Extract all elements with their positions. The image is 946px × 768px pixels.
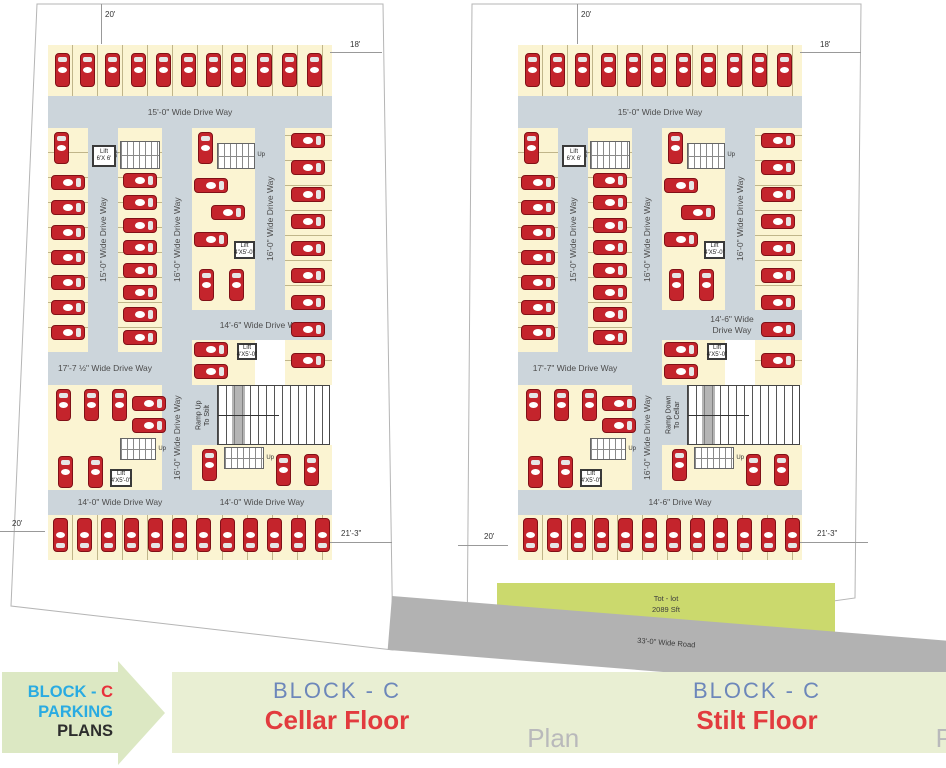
car	[593, 173, 627, 188]
car	[681, 205, 715, 220]
ramp-label: Ramp Down To Cellar	[662, 385, 686, 445]
staircase: Up	[590, 141, 630, 169]
banner-plan-word: Plan	[818, 723, 946, 768]
banner-floor-title: Cellar Floor Plan	[172, 705, 502, 736]
car	[243, 518, 258, 552]
car	[291, 187, 325, 202]
car	[123, 240, 157, 255]
stairs-up-label: Up	[158, 446, 166, 452]
car	[123, 263, 157, 278]
car	[198, 132, 213, 164]
car	[761, 241, 795, 256]
dimension-line	[458, 545, 508, 546]
dimension-line	[330, 52, 382, 53]
banner-arrow-head-icon	[118, 661, 165, 765]
car	[582, 389, 597, 421]
dimension-line	[800, 542, 868, 543]
parking-plans-page: 15'-0" Wide Drive Way15'-0" Wide Drive W…	[0, 0, 946, 768]
car	[746, 454, 761, 486]
driveway-label-drive-mid-left: 17'-7" Wide Drive Way	[518, 352, 632, 385]
car	[206, 53, 221, 87]
car	[132, 396, 166, 411]
car	[112, 389, 127, 421]
driveway-label-drive-top: 15'-0" Wide Drive Way	[518, 96, 802, 128]
lift: Lift 4'X5'-0"	[110, 469, 132, 487]
banner-floor-name: Stilt Floor	[696, 705, 817, 735]
car	[315, 518, 330, 552]
staircase: Up	[224, 447, 264, 469]
car	[291, 241, 325, 256]
stairs-up-label: Up	[257, 152, 265, 158]
car	[752, 53, 767, 87]
car	[55, 53, 70, 87]
car	[642, 518, 657, 552]
car	[575, 53, 590, 87]
car	[54, 132, 69, 164]
banner-block-title: BLOCK - C	[172, 678, 502, 704]
car	[761, 295, 795, 310]
driveway-label-drive-mid-left: 17'-7 ½" Wide Drive Way	[48, 352, 162, 385]
car	[526, 389, 541, 421]
car	[231, 53, 246, 87]
car	[105, 53, 120, 87]
car	[124, 518, 139, 552]
car	[761, 353, 795, 368]
banner-title-cellar: BLOCK - C Cellar Floor Plan	[172, 678, 502, 736]
banner-floor-name: Cellar Floor	[265, 705, 409, 735]
car	[51, 325, 85, 340]
lift: Lift 4'X5'-0"	[237, 343, 257, 360]
car	[737, 518, 752, 552]
car	[602, 418, 636, 433]
car	[664, 342, 698, 357]
car	[291, 214, 325, 229]
car	[123, 285, 157, 300]
banner-arrow-block-c: C	[101, 683, 113, 701]
floor-plan-cellar: 15'-0" Wide Drive Way15'-0" Wide Drive W…	[48, 45, 336, 560]
dimension-label-bottom-right: 21'-3"	[341, 529, 361, 538]
staircase: Up	[120, 438, 156, 460]
lift: Lift 6'X 6'	[92, 145, 116, 167]
banner-band: BLOCK - C Cellar Floor Plan BLOCK - C St…	[172, 672, 946, 753]
car	[291, 133, 325, 148]
car	[51, 250, 85, 265]
car	[148, 518, 163, 552]
car	[690, 518, 705, 552]
staircase: Up	[590, 438, 626, 460]
floor-plan-stilt: 15'-0" Wide Drive Way15'-0" Wide Drive W…	[518, 45, 806, 560]
car	[132, 418, 166, 433]
car	[593, 285, 627, 300]
car	[194, 178, 228, 193]
lift: Lift 4'X5'-0"	[704, 241, 725, 259]
car	[618, 518, 633, 552]
dimension-label-top-right: 18'	[350, 40, 360, 49]
car	[199, 269, 214, 301]
car	[713, 518, 728, 552]
car	[276, 454, 291, 486]
lift: Lift 4'X5'-0"	[234, 241, 255, 259]
ramp-label: Ramp Up To Stilt	[192, 385, 216, 445]
ramp	[687, 385, 800, 445]
car	[761, 268, 795, 283]
car	[123, 173, 157, 188]
driveway-label-drive-bottom-right: 14'-0" Wide Drive Way	[192, 490, 332, 515]
dimension-label-top: 20'	[581, 10, 591, 19]
car	[668, 132, 683, 164]
car	[593, 240, 627, 255]
road-label: 33'-0" Wide Road	[637, 636, 696, 650]
banner-title-stilt: BLOCK - C Stilt Floor Plan	[592, 678, 922, 736]
car	[524, 132, 539, 164]
car	[123, 330, 157, 345]
driveway-label-drive-bottom-left: 14'-0" Wide Drive Way	[48, 490, 192, 515]
car	[291, 322, 325, 337]
car	[291, 160, 325, 175]
car	[521, 200, 555, 215]
car	[58, 456, 73, 488]
banner-arrow-block-text: BLOCK -	[28, 683, 97, 701]
car	[761, 518, 776, 552]
ramp	[217, 385, 330, 445]
driveway-label-drive-top: 15'-0" Wide Drive Way	[48, 96, 332, 128]
car	[196, 518, 211, 552]
car	[554, 389, 569, 421]
car	[761, 133, 795, 148]
car	[194, 232, 228, 247]
car	[602, 396, 636, 411]
car	[593, 307, 627, 322]
dimension-line	[0, 531, 45, 532]
car	[593, 218, 627, 233]
car	[525, 53, 540, 87]
car	[626, 53, 641, 87]
car	[785, 518, 800, 552]
driveway-label-drive-v2b: 16'-0" Wide Drive Way	[632, 385, 662, 490]
car	[699, 269, 714, 301]
banner-block-title: BLOCK - C	[592, 678, 922, 704]
car	[761, 187, 795, 202]
car	[194, 342, 228, 357]
staircase: Up	[694, 447, 734, 469]
car	[220, 518, 235, 552]
car	[523, 518, 538, 552]
car	[56, 389, 71, 421]
stairs-up-label: Up	[736, 455, 744, 461]
stairs-up-label: Up	[628, 446, 636, 452]
car	[291, 518, 306, 552]
car	[594, 518, 609, 552]
car	[131, 53, 146, 87]
car	[80, 53, 95, 87]
car	[528, 456, 543, 488]
car	[84, 389, 99, 421]
car	[101, 518, 116, 552]
car	[123, 195, 157, 210]
car	[651, 53, 666, 87]
dimension-label-top: 20'	[105, 10, 115, 19]
car	[202, 449, 217, 481]
car	[761, 160, 795, 175]
car	[701, 53, 716, 87]
car	[307, 53, 322, 87]
car	[123, 218, 157, 233]
car	[88, 456, 103, 488]
staircase: Up	[120, 141, 160, 169]
stairs-up-label: Up	[727, 152, 735, 158]
car	[601, 53, 616, 87]
car	[172, 518, 187, 552]
car	[672, 449, 687, 481]
car	[291, 353, 325, 368]
car	[229, 269, 244, 301]
dimension-label-bottom-right: 21'-3"	[817, 529, 837, 538]
car	[521, 325, 555, 340]
banner-arrow-line1: BLOCK - C	[28, 683, 113, 703]
car	[156, 53, 171, 87]
banner-arrow-line2: PARKING	[38, 703, 113, 723]
car	[51, 275, 85, 290]
dimension-label-bottom-left: 20'	[12, 519, 22, 528]
car	[211, 205, 245, 220]
car	[550, 53, 565, 87]
car	[727, 53, 742, 87]
car	[521, 275, 555, 290]
driveway-label-drive-v2: 16'-0" Wide Drive Way	[632, 128, 662, 352]
car	[761, 214, 795, 229]
car	[593, 195, 627, 210]
car	[282, 53, 297, 87]
banner-arrow-block: BLOCK - C PARKING PLANS	[2, 672, 118, 753]
car	[593, 263, 627, 278]
lift: Lift 4'X5'-0"	[580, 469, 602, 487]
lift: Lift 4'X5'-0"	[707, 343, 727, 360]
car	[664, 364, 698, 379]
banner-floor-title: Stilt Floor Plan	[592, 705, 922, 736]
car	[181, 53, 196, 87]
stairs-up-label: Up	[266, 455, 274, 461]
car	[304, 454, 319, 486]
car	[267, 518, 282, 552]
dimension-line	[577, 4, 578, 44]
car	[666, 518, 681, 552]
car	[51, 200, 85, 215]
lift: Lift 6'X 6'	[562, 145, 586, 167]
car	[774, 454, 789, 486]
car	[194, 364, 228, 379]
staircase: Up	[687, 143, 725, 169]
car	[593, 330, 627, 345]
car	[664, 232, 698, 247]
car	[51, 300, 85, 315]
car	[669, 269, 684, 301]
car	[521, 250, 555, 265]
banner-arrow-line3: PLANS	[57, 722, 113, 742]
car	[291, 268, 325, 283]
driveway-label-drive-bottom-right: 14'-6" Drive Way	[558, 490, 802, 515]
dimension-line	[101, 4, 102, 44]
car	[676, 53, 691, 87]
car	[53, 518, 68, 552]
car	[571, 518, 586, 552]
driveway-label-drive-v2b: 16'-0" Wide Drive Way	[162, 385, 192, 490]
driveway-label-drive-v2: 16'-0" Wide Drive Way	[162, 128, 192, 352]
car	[51, 225, 85, 240]
car	[558, 456, 573, 488]
dimension-label-bottom-left: 20'	[484, 532, 494, 541]
car	[291, 295, 325, 310]
tot-lot-size: 2089 Sft	[652, 604, 680, 615]
car	[777, 53, 792, 87]
car	[123, 307, 157, 322]
car	[257, 53, 272, 87]
car	[521, 175, 555, 190]
car	[51, 175, 85, 190]
tot-lot-label: Tot - lot	[654, 593, 679, 604]
car	[521, 300, 555, 315]
dimension-line	[800, 52, 861, 53]
staircase: Up	[217, 143, 255, 169]
car	[761, 322, 795, 337]
dimension-label-top-right: 18'	[820, 40, 830, 49]
car	[521, 225, 555, 240]
dimension-line	[330, 542, 392, 543]
car	[664, 178, 698, 193]
car	[547, 518, 562, 552]
car	[77, 518, 92, 552]
